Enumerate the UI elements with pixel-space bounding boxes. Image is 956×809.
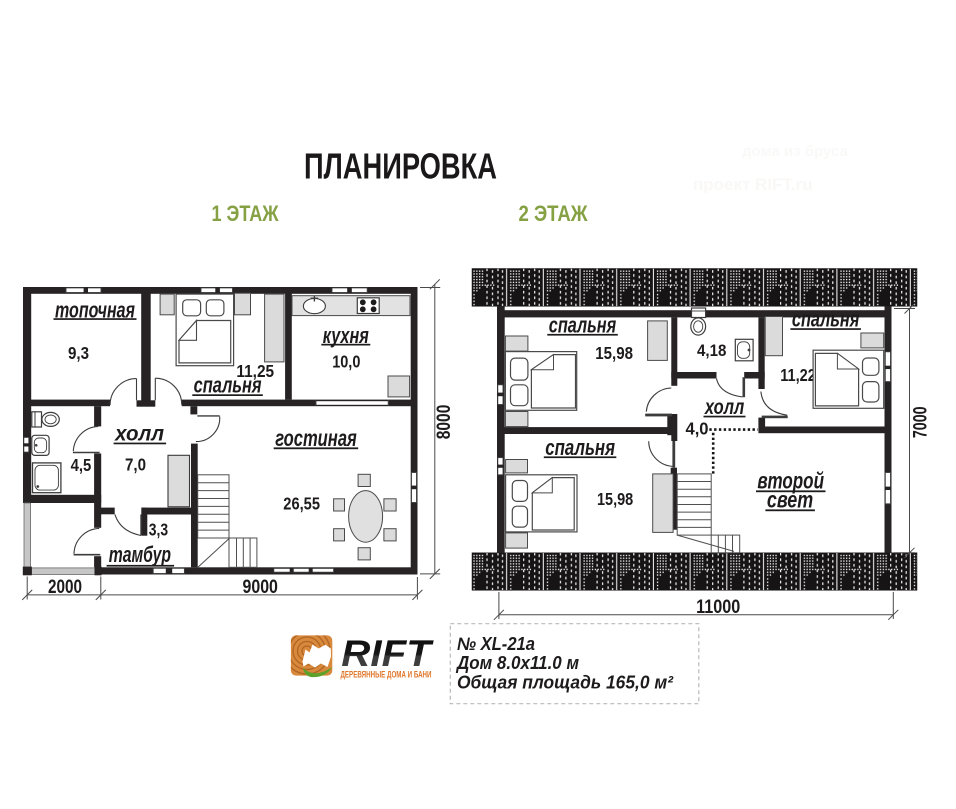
svg-text:тамбур: тамбур — [109, 542, 171, 567]
svg-text:26,55: 26,55 — [283, 494, 320, 514]
svg-text:1 ЭТАЖ: 1 ЭТАЖ — [212, 201, 279, 226]
svg-text:холл: холл — [704, 396, 744, 419]
svg-text:3,3: 3,3 — [149, 520, 169, 540]
svg-text:RIFT: RIFT — [341, 633, 434, 674]
svg-text:4,18: 4,18 — [697, 341, 726, 360]
svg-text:7,0: 7,0 — [125, 454, 146, 474]
svg-text:11000: 11000 — [696, 597, 740, 618]
svg-text:Общая площадь 165,0 м²: Общая площадь 165,0 м² — [457, 673, 674, 693]
svg-text:11,22: 11,22 — [780, 365, 816, 385]
svg-text:проект RIFT.ru: проект RIFT.ru — [693, 175, 813, 194]
svg-text:свет: свет — [767, 487, 813, 513]
svg-text:4,5: 4,5 — [71, 455, 92, 475]
svg-text:ДЕРЕВЯННЫЕ ДОМА И БАНИ: ДЕРЕВЯННЫЕ ДОМА И БАНИ — [341, 669, 432, 679]
svg-text:8000: 8000 — [434, 405, 455, 440]
svg-text:11,25: 11,25 — [236, 361, 274, 381]
svg-text:15,98: 15,98 — [595, 343, 633, 363]
svg-text:спальня: спальня — [549, 313, 616, 338]
svg-text:9000: 9000 — [243, 577, 278, 598]
svg-text:15,98: 15,98 — [597, 489, 633, 509]
svg-text:2 ЭТАЖ: 2 ЭТАЖ — [519, 201, 588, 226]
svg-text:10,0: 10,0 — [332, 352, 360, 372]
svg-text:холл: холл — [114, 423, 164, 446]
svg-text:№ XL-21a: № XL-21a — [457, 634, 535, 654]
svg-text:Дом 8.0х11.0 м: Дом 8.0х11.0 м — [455, 653, 579, 673]
svg-text:гостиная: гостиная — [275, 425, 357, 451]
svg-text:ПЛАНИРОВКА: ПЛАНИРОВКА — [304, 146, 497, 187]
svg-text:4,0: 4,0 — [686, 418, 709, 438]
svg-text:7000: 7000 — [910, 407, 931, 439]
svg-text:спальня: спальня — [545, 435, 615, 460]
svg-text:спальня: спальня — [792, 307, 859, 332]
svg-text:9,3: 9,3 — [68, 343, 89, 363]
svg-text:2000: 2000 — [48, 577, 82, 598]
svg-text:дома из бруса: дома из бруса — [742, 143, 848, 160]
